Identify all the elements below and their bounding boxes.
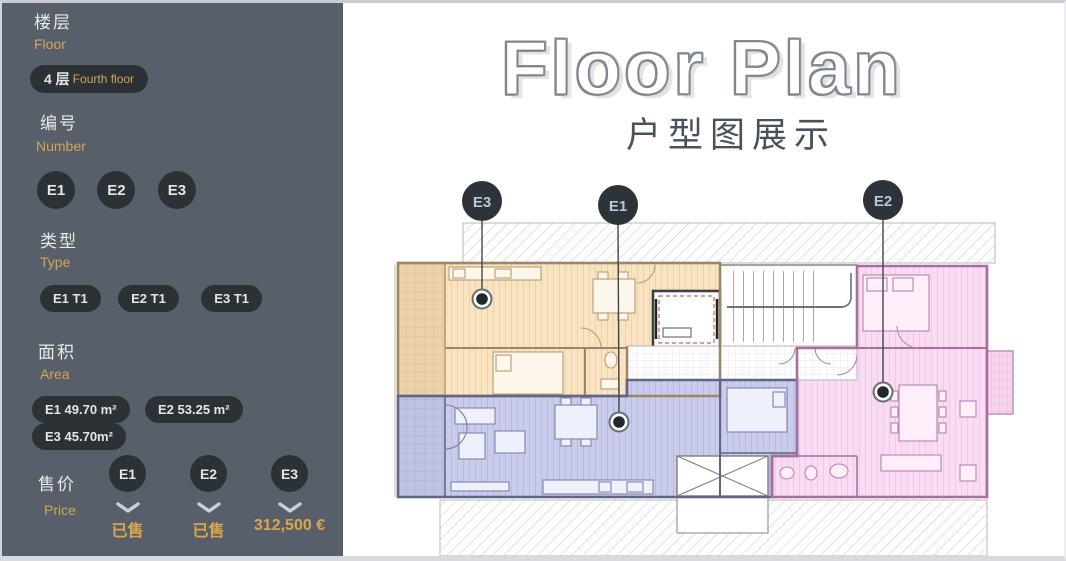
price-column-e1: E1 已售 [87, 455, 168, 541]
type-button-e1t1[interactable]: E1 T1 [40, 285, 101, 312]
type-section-label-zh: 类型 [40, 227, 78, 252]
elevator [653, 291, 720, 348]
number-button-row: E1 E2 E3 [37, 171, 214, 209]
area-section-label-en: Area [40, 366, 70, 382]
floor-section-label-en: Floor [34, 36, 66, 52]
svg-text:E3: E3 [473, 194, 491, 211]
chevron-down-icon[interactable] [278, 502, 302, 513]
area-button-row: E1 49.70 m² E2 53.25 m² E3 45.70m² [32, 396, 343, 450]
number-button-e1[interactable]: E1 [37, 171, 75, 209]
price-column-e3: E3 312,500 € [249, 455, 330, 535]
stairwell [720, 265, 857, 348]
floor-section-label-zh: 楼层 [34, 8, 72, 33]
type-button-e2t1[interactable]: E2 T1 [118, 285, 179, 312]
plan-marker-e1[interactable]: E1 [598, 185, 638, 225]
number-button-e2[interactable]: E2 [97, 171, 135, 209]
floor-plan-app: 楼层 Floor 4 层 Fourth floor 编号 Number E1 E… [0, 0, 1066, 561]
light-shaft [677, 456, 768, 533]
floor-plan-canvas: E3 E1 E2 [343, 3, 1061, 556]
adjacent-building-hatch-top [463, 223, 995, 263]
number-button-e3[interactable]: E3 [158, 171, 196, 209]
price-unit-button-e1[interactable]: E1 [109, 455, 146, 492]
chevron-down-icon[interactable] [197, 502, 221, 513]
price-unit-button-e3[interactable]: E3 [271, 455, 308, 492]
area-button-e1[interactable]: E1 49.70 m² [32, 396, 130, 423]
floor-select-name: Fourth floor [73, 72, 134, 86]
number-section-label-en: Number [36, 138, 86, 154]
price-section: 售价 Price E1 已售 E2 已售 E3 [2, 455, 343, 555]
sidebar: 楼层 Floor 4 层 Fourth floor 编号 Number E1 E… [2, 3, 343, 556]
plan-marker-e2[interactable]: E2 [863, 180, 903, 220]
price-value-e3: 312,500 € [249, 517, 330, 535]
svg-text:E1: E1 [609, 198, 627, 215]
type-button-e3t1[interactable]: E3 T1 [201, 285, 262, 312]
price-value-e1: 已售 [87, 517, 168, 541]
main-panel: Floor Plan 户型图展示 [343, 3, 1061, 556]
price-section-label-en: Price [44, 502, 76, 518]
floor-select-number: 4 层 [44, 69, 70, 89]
chevron-down-icon[interactable] [116, 502, 140, 513]
price-column-e2: E2 已售 [168, 455, 249, 541]
price-section-label-zh: 售价 [38, 470, 76, 495]
type-section-label-en: Type [40, 254, 70, 270]
number-section-label-zh: 编号 [40, 109, 78, 134]
type-button-row: E1 T1 E2 T1 E3 T1 [40, 285, 275, 312]
floor-select-button[interactable]: 4 层 Fourth floor [30, 65, 148, 93]
area-button-e2[interactable]: E2 53.25 m² [145, 396, 243, 423]
price-unit-button-e2[interactable]: E2 [190, 455, 227, 492]
area-button-e3[interactable]: E3 45.70m² [32, 423, 126, 450]
corridor-landing [628, 346, 857, 380]
area-section-label-zh: 面积 [38, 338, 76, 363]
price-value-e2: 已售 [168, 517, 249, 541]
plan-marker-e3[interactable]: E3 [462, 181, 502, 221]
svg-text:E2: E2 [874, 193, 892, 210]
